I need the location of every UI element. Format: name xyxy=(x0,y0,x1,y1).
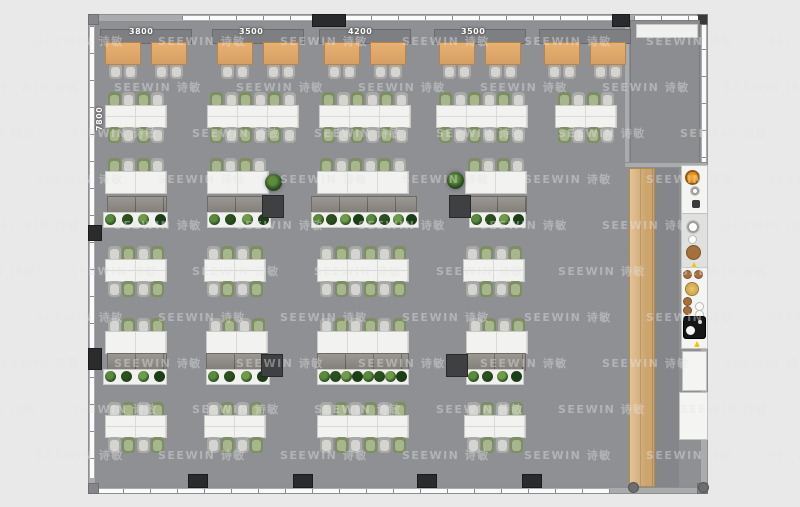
chair xyxy=(236,64,249,79)
plant-pot-icon xyxy=(684,271,691,278)
plant-icon xyxy=(374,371,385,382)
storage-credenza xyxy=(108,197,166,213)
plant-icon xyxy=(326,214,337,225)
plant-icon xyxy=(513,214,524,225)
desk-table xyxy=(437,106,527,127)
desk-table xyxy=(318,332,408,353)
plant-icon xyxy=(121,371,132,382)
cafe-table xyxy=(106,43,140,64)
chair xyxy=(587,127,600,143)
plant-icon xyxy=(242,214,253,225)
chair xyxy=(380,127,393,143)
chair xyxy=(467,437,480,453)
potted-plant-icon xyxy=(447,172,464,189)
plant-icon xyxy=(330,371,341,382)
cafe-table xyxy=(152,43,186,64)
desk-table xyxy=(467,332,527,353)
plant-icon xyxy=(319,371,330,382)
desk-table xyxy=(205,416,265,437)
jar-icon xyxy=(684,298,691,305)
dimension-label: 3500 xyxy=(461,27,485,36)
plant-icon xyxy=(353,214,364,225)
chair xyxy=(239,127,252,143)
dimension-label-vertical: 7800 xyxy=(95,107,104,131)
planter-box xyxy=(467,370,523,384)
speaker-icon xyxy=(692,200,700,208)
desk-table xyxy=(556,106,616,127)
appliance-icon xyxy=(687,246,700,259)
planter-box xyxy=(318,370,408,384)
plant-icon xyxy=(241,371,252,382)
chair xyxy=(236,437,249,453)
plant-icon xyxy=(208,371,219,382)
chair xyxy=(495,281,508,297)
cafe-table xyxy=(591,43,625,64)
plant-icon xyxy=(471,214,482,225)
chair xyxy=(393,281,406,297)
structural-column xyxy=(188,474,208,488)
chair xyxy=(225,127,238,143)
plant-icon xyxy=(485,214,496,225)
jar-icon xyxy=(684,307,691,314)
plant-icon xyxy=(105,371,116,382)
chair xyxy=(481,437,494,453)
furniture-layer xyxy=(0,0,800,507)
chair xyxy=(393,437,406,453)
plant-icon xyxy=(138,371,149,382)
fixture-panel xyxy=(683,352,706,390)
chair xyxy=(572,127,585,143)
desk-table xyxy=(207,332,267,353)
floorplan-canvas: 3800 3500 4200 3500 7800 SEEWIN 诗敏SEEWIN… xyxy=(0,0,800,507)
chair xyxy=(466,281,479,297)
chair xyxy=(207,437,220,453)
structural-column xyxy=(522,474,542,488)
chair xyxy=(328,64,341,79)
plant-icon xyxy=(154,371,165,382)
storage-credenza xyxy=(467,354,525,370)
side-table xyxy=(450,196,470,217)
plant-icon xyxy=(341,371,352,382)
chair xyxy=(483,127,496,143)
storage-credenza xyxy=(312,197,416,213)
plant-icon xyxy=(482,371,493,382)
chair xyxy=(389,64,402,79)
dimension-label: 3800 xyxy=(129,27,153,36)
cooktop-icon xyxy=(684,317,705,338)
structural-column xyxy=(293,474,313,488)
plant-icon xyxy=(511,371,522,382)
chair xyxy=(337,127,350,143)
plant-icon xyxy=(225,214,236,225)
chair xyxy=(510,437,523,453)
planter-box xyxy=(470,213,525,227)
chair xyxy=(497,127,510,143)
chair xyxy=(221,437,234,453)
chair xyxy=(221,64,234,79)
plant-icon xyxy=(209,214,220,225)
chair xyxy=(283,127,296,143)
desk-table xyxy=(106,416,166,437)
chair xyxy=(439,127,452,143)
storage-credenza xyxy=(108,354,166,370)
chair xyxy=(137,127,150,143)
desk-table xyxy=(464,260,524,281)
banquette-bench xyxy=(540,30,630,43)
desk-table xyxy=(318,416,408,437)
plant-icon xyxy=(385,371,396,382)
cistern-icon xyxy=(689,236,696,243)
chair xyxy=(122,127,135,143)
chair xyxy=(207,281,220,297)
chair xyxy=(122,437,135,453)
chair xyxy=(489,64,502,79)
chair xyxy=(558,127,571,143)
planter-box xyxy=(104,370,166,384)
planter-box xyxy=(207,370,269,384)
chair xyxy=(282,64,295,79)
storage-credenza xyxy=(208,197,264,213)
fixture-panel xyxy=(680,393,707,439)
chair xyxy=(137,281,150,297)
chair xyxy=(366,127,379,143)
chair xyxy=(151,127,164,143)
chair xyxy=(221,281,234,297)
cafe-table xyxy=(371,43,405,64)
chair xyxy=(108,281,121,297)
chair xyxy=(267,64,280,79)
desk-table xyxy=(106,172,166,193)
chair xyxy=(349,281,362,297)
chair xyxy=(395,127,408,143)
storage-credenza xyxy=(207,354,267,370)
desk-table xyxy=(208,106,298,127)
chair xyxy=(320,437,333,453)
chair xyxy=(454,127,467,143)
chair xyxy=(170,64,183,79)
chair xyxy=(563,64,576,79)
chair xyxy=(609,64,622,79)
plant-icon xyxy=(406,214,417,225)
chair xyxy=(335,281,348,297)
chair xyxy=(268,127,281,143)
side-table xyxy=(447,355,467,376)
toilet-icon xyxy=(687,221,699,233)
chair xyxy=(378,437,391,453)
plant-icon xyxy=(366,214,377,225)
plant-icon xyxy=(105,214,116,225)
desk-table xyxy=(466,172,526,193)
chair xyxy=(374,64,387,79)
structural-column xyxy=(88,348,102,370)
chair xyxy=(504,64,517,79)
structural-column xyxy=(88,225,102,241)
chair xyxy=(509,281,522,297)
plant-icon xyxy=(122,214,133,225)
sink-icon xyxy=(686,283,698,295)
chair xyxy=(151,437,164,453)
chair xyxy=(137,437,150,453)
desk-table xyxy=(208,172,268,193)
plant-icon xyxy=(352,371,363,382)
cafe-table xyxy=(325,43,359,64)
chair xyxy=(496,437,509,453)
dimension-label: 4200 xyxy=(348,27,372,36)
structural-column xyxy=(312,14,346,27)
desk-table xyxy=(318,172,408,193)
chair xyxy=(108,437,121,453)
chair xyxy=(349,437,362,453)
planter-box xyxy=(104,213,167,227)
chair xyxy=(155,64,168,79)
chair xyxy=(364,281,377,297)
chair xyxy=(254,127,267,143)
chair xyxy=(124,64,137,79)
chair xyxy=(335,437,348,453)
chair xyxy=(458,64,471,79)
storage-credenza xyxy=(470,197,526,213)
cafe-table xyxy=(440,43,474,64)
chair xyxy=(443,64,456,79)
plant-icon xyxy=(363,371,374,382)
chair xyxy=(378,281,391,297)
planter-box xyxy=(312,213,418,227)
chair xyxy=(512,127,525,143)
chair xyxy=(109,64,122,79)
chair xyxy=(343,64,356,79)
chair xyxy=(250,281,263,297)
plant-icon xyxy=(497,371,508,382)
desk-table xyxy=(320,106,410,127)
cafe-table xyxy=(545,43,579,64)
structural-column xyxy=(612,14,630,27)
cafe-table xyxy=(264,43,298,64)
desk-table xyxy=(318,260,408,281)
side-table xyxy=(262,355,282,376)
chair xyxy=(364,437,377,453)
knob-icon xyxy=(691,187,699,195)
chair xyxy=(351,127,364,143)
chair xyxy=(322,127,335,143)
desk-table xyxy=(465,416,525,437)
side-table xyxy=(263,196,283,217)
burner-icon xyxy=(687,172,698,183)
chair xyxy=(594,64,607,79)
chair xyxy=(480,281,493,297)
desk-table xyxy=(205,260,265,281)
desk-table xyxy=(106,106,166,127)
potted-plant-icon xyxy=(265,174,282,191)
cafe-table xyxy=(218,43,252,64)
chair xyxy=(151,281,164,297)
planter-box xyxy=(208,213,270,227)
plant-icon xyxy=(468,371,479,382)
chair xyxy=(210,127,223,143)
chair xyxy=(601,127,614,143)
plant-icon xyxy=(379,214,390,225)
chair xyxy=(108,127,121,143)
plant-icon xyxy=(396,371,407,382)
plant-icon xyxy=(155,214,166,225)
chair xyxy=(468,127,481,143)
chair xyxy=(320,281,333,297)
plant-icon xyxy=(393,214,404,225)
chair xyxy=(122,281,135,297)
dot-icon xyxy=(696,303,703,310)
plant-icon xyxy=(313,214,324,225)
chair xyxy=(250,437,263,453)
desk-table xyxy=(106,332,166,353)
desk-table xyxy=(106,260,166,281)
storage-credenza xyxy=(318,354,408,370)
structural-column xyxy=(417,474,437,488)
plant-pot-icon xyxy=(695,271,702,278)
cafe-table xyxy=(486,43,520,64)
chair xyxy=(548,64,561,79)
dimension-label: 3500 xyxy=(239,27,263,36)
chair xyxy=(236,281,249,297)
plant-icon xyxy=(499,214,510,225)
plant-icon xyxy=(224,371,235,382)
plant-icon xyxy=(340,214,351,225)
plant-icon xyxy=(138,214,149,225)
